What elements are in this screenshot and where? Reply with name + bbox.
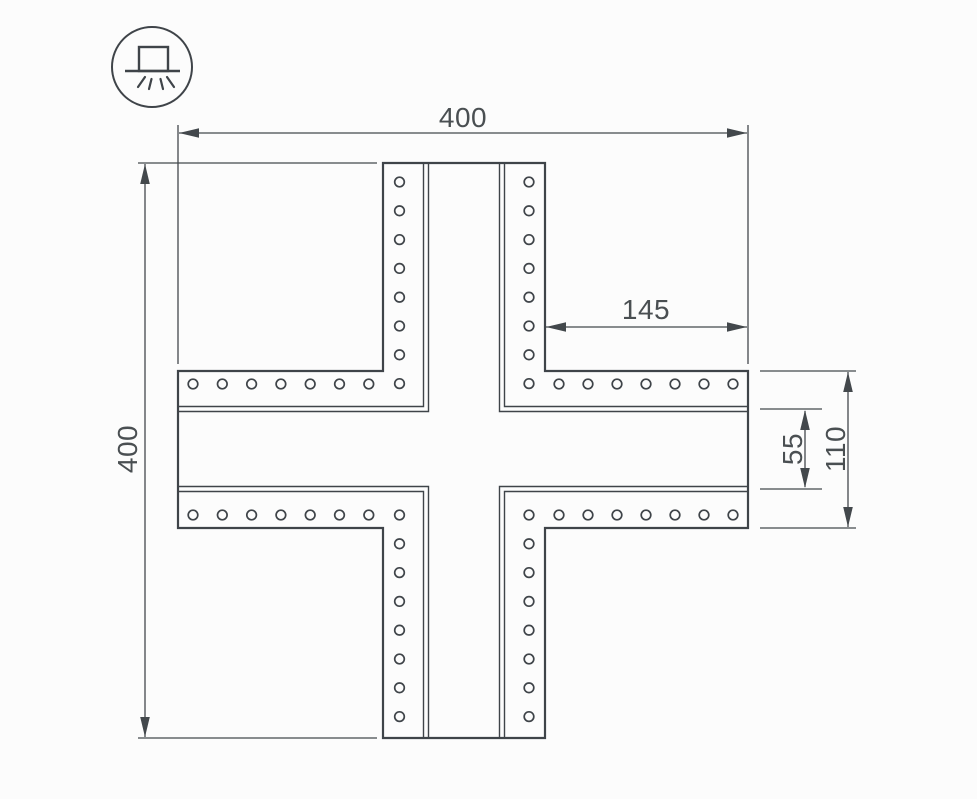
hole xyxy=(395,597,405,607)
hole xyxy=(554,510,564,520)
hole xyxy=(188,510,198,520)
hole xyxy=(641,379,651,389)
cross-plate-outline xyxy=(178,163,748,738)
arrow-right-icon xyxy=(727,322,747,332)
hole xyxy=(524,654,534,664)
hole xyxy=(524,292,534,302)
hole xyxy=(395,321,405,331)
dim-overall-width-label: 400 xyxy=(439,102,487,133)
hole xyxy=(395,568,405,578)
hole xyxy=(699,510,709,520)
hole xyxy=(395,683,405,693)
dim-lines-overall-height xyxy=(138,163,377,738)
hole xyxy=(524,350,534,360)
hole xyxy=(395,625,405,635)
hole xyxy=(395,712,405,722)
hole xyxy=(395,292,405,302)
dimension-overall-height: 400 xyxy=(112,163,377,738)
hole xyxy=(583,510,593,520)
hole xyxy=(188,379,198,389)
mounting-holes xyxy=(188,177,738,721)
hole xyxy=(218,510,228,520)
arrow-left-icon xyxy=(546,322,566,332)
hole xyxy=(699,379,709,389)
hole xyxy=(395,510,405,520)
hole xyxy=(305,510,315,520)
hole xyxy=(728,510,738,520)
arrow-right-icon xyxy=(727,128,747,138)
luminaire-body-icon xyxy=(139,47,168,71)
light-rays-icon xyxy=(138,77,174,89)
hole xyxy=(335,379,345,389)
hole xyxy=(247,379,257,389)
dimension-arm-width: 110 xyxy=(760,371,856,528)
technical-drawing: 400 400 145 55 110 xyxy=(0,0,977,799)
hole xyxy=(524,206,534,216)
dim-arm-length-label: 145 xyxy=(622,294,670,325)
hole xyxy=(364,510,374,520)
hole xyxy=(524,712,534,722)
dimension-arm-length: 145 xyxy=(546,294,747,332)
hole xyxy=(524,683,534,693)
hole xyxy=(524,539,534,549)
hole xyxy=(395,350,405,360)
hole xyxy=(612,379,622,389)
arrow-up-icon xyxy=(140,164,150,184)
hole xyxy=(276,510,286,520)
arrow-down-icon xyxy=(843,507,853,527)
hole xyxy=(612,510,622,520)
hole xyxy=(335,510,345,520)
hole xyxy=(524,177,534,187)
hole xyxy=(554,379,564,389)
arrow-down-icon xyxy=(140,717,150,737)
hole xyxy=(276,379,286,389)
hole xyxy=(395,177,405,187)
hole xyxy=(395,235,405,245)
arrow-left-icon xyxy=(179,128,199,138)
hole xyxy=(524,597,534,607)
dim-overall-height-label: 400 xyxy=(112,425,143,473)
hole xyxy=(670,510,680,520)
dimension-channel-width: 55 xyxy=(760,409,822,489)
hole xyxy=(670,379,680,389)
channel-edge-lines xyxy=(178,163,748,738)
arrow-up-icon xyxy=(800,410,810,430)
hole xyxy=(524,379,534,389)
hole xyxy=(524,264,534,274)
hole xyxy=(247,510,257,520)
dim-lines-overall-width xyxy=(178,125,748,364)
hole xyxy=(524,510,534,520)
hole xyxy=(395,379,405,389)
hole xyxy=(395,206,405,216)
hole xyxy=(583,379,593,389)
hole xyxy=(218,379,228,389)
hole xyxy=(524,625,534,635)
hole xyxy=(395,264,405,274)
hole xyxy=(305,379,315,389)
icon-circle xyxy=(112,27,192,107)
hole xyxy=(641,510,651,520)
hole xyxy=(524,568,534,578)
hole xyxy=(364,379,374,389)
hole xyxy=(524,235,534,245)
dim-channel-width-label: 55 xyxy=(777,433,808,465)
arrow-up-icon xyxy=(843,372,853,392)
hole xyxy=(395,539,405,549)
arrow-down-icon xyxy=(800,468,810,488)
surface-mount-light-icon xyxy=(112,27,192,107)
drawing-canvas: 400 400 145 55 110 xyxy=(0,0,977,799)
dim-arm-width-label: 110 xyxy=(820,426,851,472)
hole xyxy=(524,321,534,331)
hole xyxy=(395,654,405,664)
hole xyxy=(728,379,738,389)
